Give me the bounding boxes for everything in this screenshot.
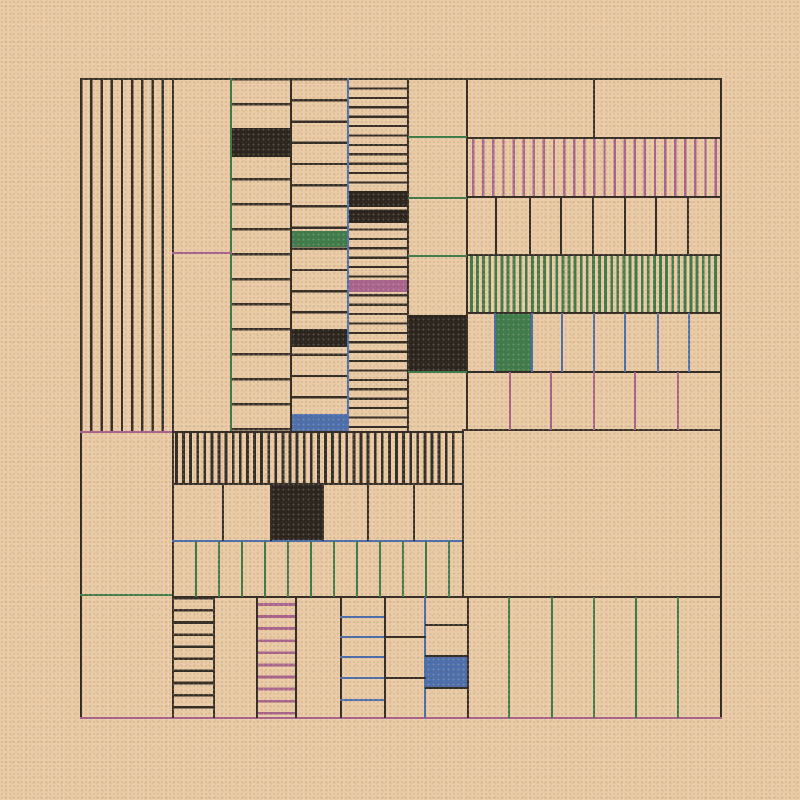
left-vstripe-panel — [80, 78, 172, 432]
cell-divider-green — [508, 597, 510, 718]
cell-divider-mauve — [509, 372, 511, 430]
cell-divider-blue — [688, 313, 690, 372]
divider-v — [172, 78, 174, 718]
cell-divider-blue — [531, 313, 533, 372]
cell-divider-mauve — [593, 372, 595, 430]
divider-v — [256, 597, 258, 718]
divider-v — [593, 78, 595, 139]
divider-v — [213, 597, 215, 718]
cell-divider-green — [635, 597, 637, 718]
cell-divider — [529, 197, 531, 255]
green-hline — [408, 255, 467, 257]
cell-divider-blue — [494, 313, 496, 372]
cell-divider-blue — [561, 313, 563, 372]
green-hline — [408, 136, 467, 138]
mauve-vstripe-band — [467, 138, 720, 197]
frame-border-bottom-mauve — [80, 717, 722, 720]
frame-border-left — [80, 78, 82, 718]
cell-divider-green — [379, 541, 381, 597]
rows-panel-c — [348, 78, 408, 432]
cell-divider-green — [310, 541, 312, 597]
divider-h — [425, 655, 468, 657]
cell-divider-green — [677, 597, 679, 718]
blue-hline — [340, 677, 384, 679]
divider-h — [425, 687, 468, 689]
divider-v — [295, 597, 297, 718]
black-cell — [270, 484, 322, 541]
black-cell — [348, 210, 408, 223]
green-hline — [80, 594, 172, 596]
divider-v-blue — [424, 597, 426, 718]
divider-h-blue — [172, 540, 463, 542]
cell-divider — [322, 484, 324, 541]
divider-v — [462, 429, 464, 598]
cell-divider-green — [333, 541, 335, 597]
cell-divider-blue — [657, 313, 659, 372]
frame-border-top — [80, 78, 722, 80]
cell-divider — [624, 197, 626, 255]
frame-border-right — [720, 78, 722, 718]
cell-divider — [560, 197, 562, 255]
rows-panel-b — [290, 78, 348, 432]
cell-divider-mauve — [550, 372, 552, 430]
divider-h — [425, 624, 468, 626]
black-cell — [408, 315, 467, 371]
cell-divider — [222, 484, 224, 541]
cell-divider-green — [195, 541, 197, 597]
black-cell — [348, 191, 408, 207]
cell-divider-blue — [593, 313, 595, 372]
cell-divider-green — [264, 541, 266, 597]
green-hline — [408, 197, 467, 199]
divider-v — [467, 597, 469, 718]
cell-divider-green — [425, 541, 427, 597]
cell-divider-mauve — [677, 372, 679, 430]
cell-divider — [270, 484, 272, 541]
green-cell — [496, 313, 532, 372]
blue-hline — [340, 636, 384, 638]
divider-h — [172, 596, 720, 598]
green-vstripe-band — [467, 255, 720, 313]
black-cell — [290, 329, 348, 347]
blue-hline — [340, 656, 384, 658]
cell-divider — [655, 197, 657, 255]
cell-divider-green — [402, 541, 404, 597]
blue-hline — [340, 699, 384, 701]
mauve-cell — [348, 280, 408, 292]
divider-v-green — [230, 78, 232, 432]
mauve-hline — [172, 252, 232, 254]
green-hline — [408, 371, 467, 373]
divider-v — [384, 597, 386, 718]
cell-divider-mauve — [634, 372, 636, 430]
divider-h — [467, 137, 720, 139]
divider-v — [290, 78, 292, 432]
divider-h — [172, 431, 463, 433]
cell-divider-green — [551, 597, 553, 718]
dense-vstripe-band — [172, 432, 455, 484]
cell-divider-green — [241, 541, 243, 597]
cell-divider-green — [287, 541, 289, 597]
divider-h — [384, 636, 426, 638]
blue-cell — [425, 656, 468, 688]
cell-divider-green — [356, 541, 358, 597]
green-cell — [290, 231, 348, 247]
cell-divider — [413, 484, 415, 541]
cell-divider-green — [218, 541, 220, 597]
cell-divider-blue — [624, 313, 626, 372]
divider-h — [172, 483, 463, 485]
cell-divider — [367, 484, 369, 541]
cell-divider — [592, 197, 594, 255]
mauve-hline — [80, 431, 172, 433]
divider-h — [384, 677, 426, 679]
black-hstripe-column — [172, 597, 213, 718]
artwork-canvas — [0, 0, 800, 800]
mauve-hstripe-column — [257, 597, 295, 718]
cell-divider-green — [593, 597, 595, 718]
blue-hline — [340, 616, 384, 618]
cell-divider-green — [448, 541, 450, 597]
divider-h — [462, 429, 720, 431]
divider-v-blue — [347, 78, 349, 432]
blue-cell — [290, 414, 348, 432]
cell-divider — [687, 197, 689, 255]
black-cell — [231, 128, 290, 157]
cell-divider — [495, 197, 497, 255]
